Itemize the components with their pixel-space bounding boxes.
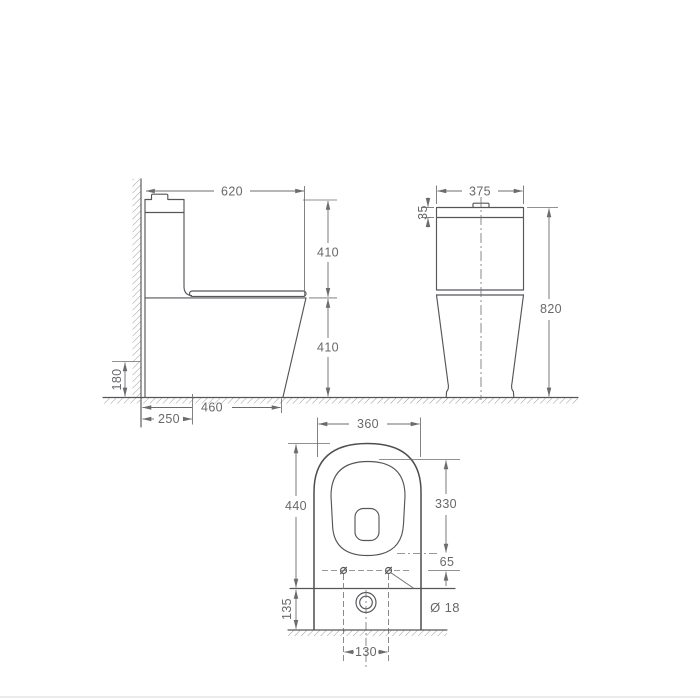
front-left-side bbox=[437, 295, 449, 397]
side-front-slope bbox=[283, 298, 306, 397]
plan-width-dim-label: 360 bbox=[357, 417, 379, 431]
floor-hatch bbox=[103, 398, 578, 404]
side-front-setout-dim-label: 460 bbox=[201, 401, 223, 415]
plan-seat-to-holes-dim-label: 65 bbox=[440, 555, 455, 569]
plan-wall-hatch bbox=[288, 630, 447, 636]
side-seat bbox=[190, 291, 307, 296]
technical-drawing-page: 620 410 410 180 460 250 bbox=[0, 0, 700, 700]
plan-rear-depth-dim-label: 135 bbox=[280, 598, 294, 620]
image-bottom-edge bbox=[0, 696, 700, 698]
plan-seat-depth-dim-label: 330 bbox=[435, 497, 457, 511]
plan-hole-spacing-dim-label: 130 bbox=[355, 645, 377, 659]
side-outlet-setout-dim-label: 250 bbox=[158, 412, 180, 426]
hole-diameter-leader bbox=[391, 573, 415, 589]
front-right-side bbox=[512, 295, 524, 397]
plan-depth-dim-label: 440 bbox=[285, 499, 307, 513]
plan-flush-opening bbox=[355, 509, 379, 541]
front-height-dim-label: 820 bbox=[540, 302, 562, 316]
side-view: 620 410 410 180 460 250 bbox=[103, 179, 578, 427]
side-cistern-outline bbox=[145, 194, 192, 397]
front-cistern-outline bbox=[437, 208, 524, 291]
plan-view: 360 440 330 65 135 130 Ø 18 bbox=[280, 417, 460, 668]
front-lid-thickness-dim-label: 35 bbox=[416, 205, 430, 220]
side-inlet-height-dim-label: 180 bbox=[110, 368, 124, 390]
hole-diameter-label: Ø 18 bbox=[430, 600, 460, 615]
front-width-dim-label: 375 bbox=[469, 185, 491, 199]
toilet-dimension-drawing: 620 410 410 180 460 250 bbox=[0, 0, 700, 700]
wall-hatch bbox=[133, 179, 142, 398]
plan-outer-outline bbox=[314, 444, 421, 631]
side-upper-height-dim-label: 410 bbox=[317, 246, 339, 260]
side-lower-height-dim-label: 410 bbox=[317, 341, 339, 355]
side-depth-dim-label: 620 bbox=[221, 185, 243, 199]
front-view: 375 35 820 bbox=[416, 185, 562, 401]
